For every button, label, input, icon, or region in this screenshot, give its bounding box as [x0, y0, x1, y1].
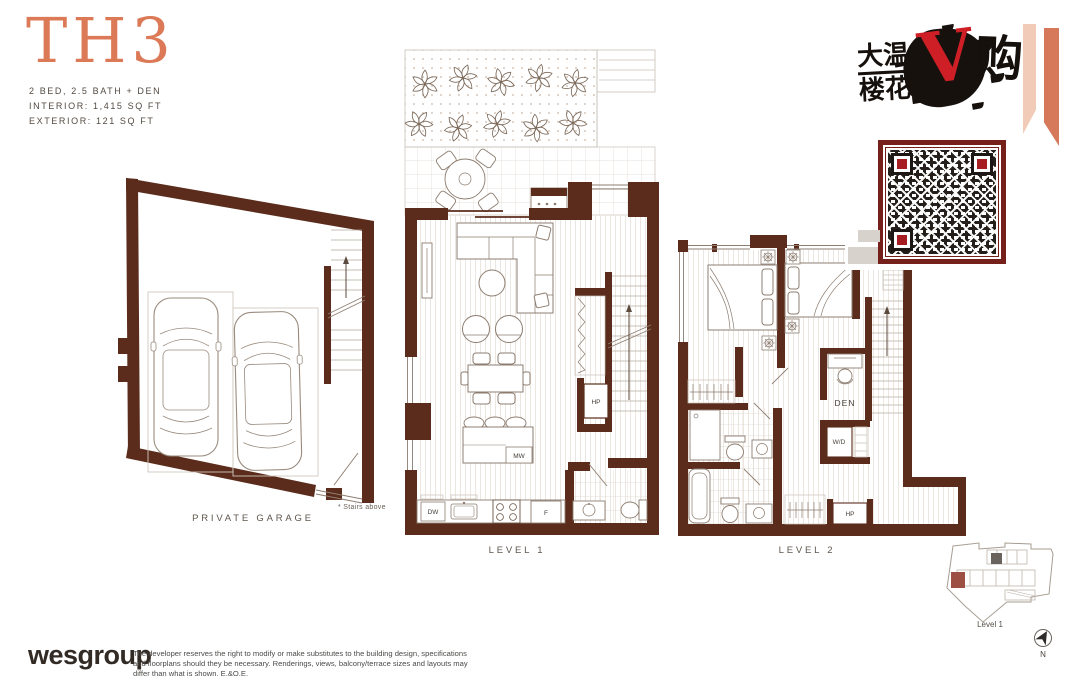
garage-floorplan [110, 170, 395, 515]
level2-caption: LEVEL 2 [722, 545, 892, 556]
bed-second [785, 263, 852, 317]
watermark-v-letter: V [915, 19, 977, 95]
north-label: N [1040, 650, 1046, 659]
hp-label-l1: HP [591, 399, 600, 406]
unit-specs: 2 BED, 2.5 BATH + DEN INTERIOR: 1,415 SQ… [29, 84, 162, 129]
watermark-cn-line2: 楼花 [853, 72, 916, 105]
powder-toilet [621, 500, 647, 520]
patio [403, 50, 655, 147]
tv-console [422, 243, 432, 298]
north-arrow: N [1035, 628, 1053, 659]
floorplan-page: TH3 2 BED, 2.5 BATH + DEN INTERIOR: 1,41… [0, 0, 1080, 689]
level1-caption: LEVEL 1 [432, 545, 602, 556]
faded-plan-fragment-2 [858, 230, 880, 242]
range [493, 500, 520, 523]
fridge-label: F [544, 510, 548, 517]
powder-vanity [573, 501, 605, 520]
hp-label-l2: HP [845, 511, 854, 518]
kitchen-island: MW [463, 417, 533, 463]
site-keyplan: N [935, 540, 1075, 660]
laundry-closet: W/D [827, 427, 867, 457]
level2-floorplan: DEN W/D HP [676, 226, 968, 538]
den-label: DEN [835, 398, 856, 408]
disclaimer-text: The developer reserves the right to modi… [133, 649, 471, 678]
hallway-extension-floor [903, 487, 960, 524]
disclaimer-line2: should they be necessary. Renderings, vi… [133, 659, 468, 678]
vanity-ensuite [752, 440, 772, 458]
watermark-cn-line1: 大温 [856, 39, 910, 76]
qr-finder-top-left [891, 153, 913, 175]
toilet-ensuite [725, 436, 745, 460]
bed-primary [708, 265, 777, 330]
wd-label: W/D [833, 439, 846, 446]
kitchen-sink [451, 502, 477, 519]
qr-inner-frame [885, 147, 999, 257]
vanity-main [746, 504, 772, 523]
keyplan-unit-highlight [951, 572, 965, 588]
car-left [151, 298, 221, 456]
car-right [231, 311, 305, 471]
hp-closet-l1: HP [584, 384, 608, 418]
qr-finder-top-right [971, 153, 993, 175]
microwave-label: MW [513, 453, 525, 460]
qr-code [878, 140, 1006, 264]
watermark-chinese-left: 大温 楼花 [851, 38, 916, 105]
spec-beds-baths: 2 BED, 2.5 BATH + DEN [29, 84, 162, 99]
spec-exterior: EXTERIOR: 121 SQ FT [29, 114, 162, 129]
garage-stairs [328, 230, 365, 370]
unit-title: TH3 [26, 8, 176, 73]
coffee-table [479, 270, 505, 296]
level1-floorplan: MW DW F [403, 48, 661, 535]
toilet-main [721, 498, 739, 523]
keyplan-level-label: Level 1 [953, 620, 1027, 629]
corner-ribbon-dark [1044, 28, 1059, 146]
hp-closet-l2: HP [833, 503, 867, 524]
watermark-cn-right: 购 [974, 35, 1024, 85]
spec-interior: INTERIOR: 1,415 SQ FT [29, 99, 162, 114]
keyplan-core [991, 553, 1002, 564]
bathtub [689, 469, 710, 523]
garage-caption: PRIVATE GARAGE [168, 513, 338, 524]
terrace [405, 147, 655, 215]
garage-stairs-note: * Stairs above [338, 504, 386, 511]
qr-finder-bottom-left [891, 229, 913, 251]
qr-modules [888, 150, 996, 254]
dishwasher-label: DW [428, 509, 440, 516]
faded-plan-fragment [848, 247, 878, 264]
